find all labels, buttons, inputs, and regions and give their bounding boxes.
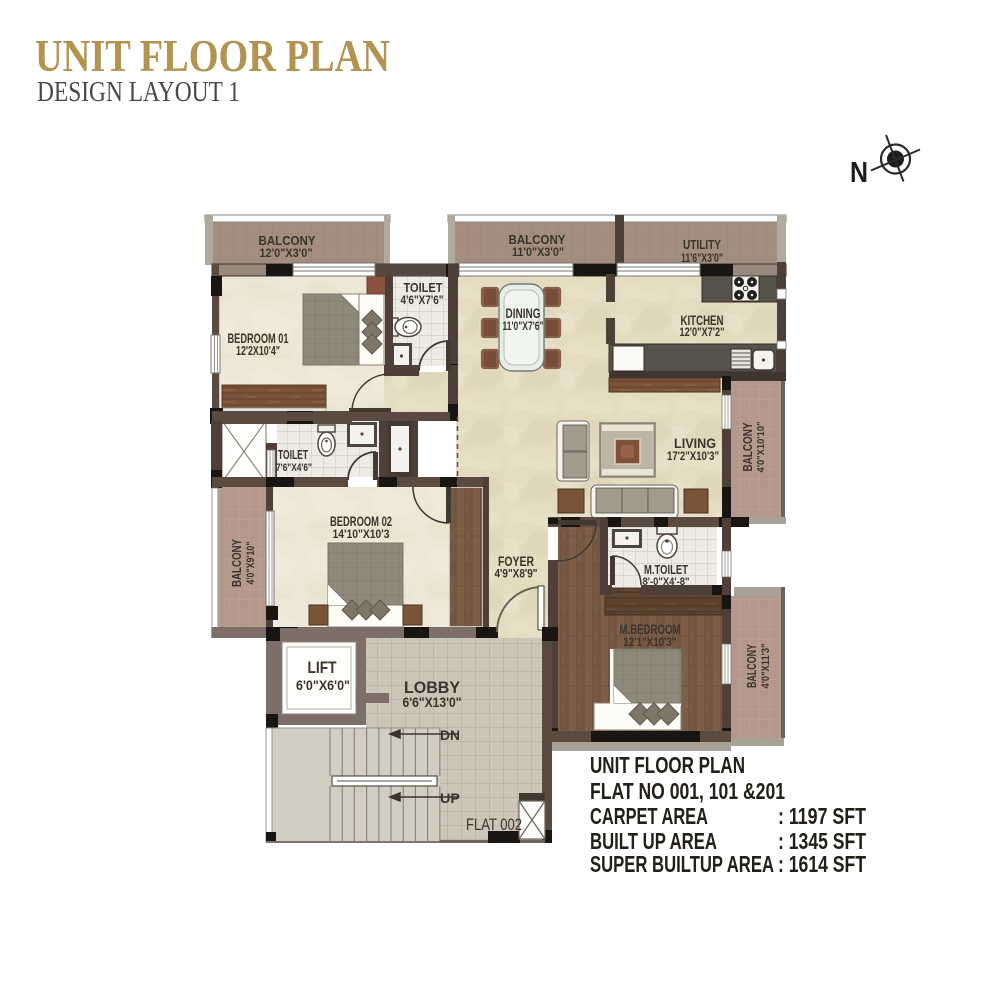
svg-text:14'10"X10'3: 14'10"X10'3 [333, 527, 390, 541]
svg-text:SUPER BUILTUP AREA: SUPER BUILTUP AREA [590, 851, 774, 877]
svg-text:11'0"X7'6": 11'0"X7'6" [503, 319, 544, 333]
svg-text:BALCONY: BALCONY [509, 232, 566, 247]
svg-text:UTILITY: UTILITY [683, 237, 721, 252]
svg-text:4'0"X11'3": 4'0"X11'3" [760, 644, 772, 689]
svg-text:4'6"X7'6": 4'6"X7'6" [401, 295, 444, 307]
svg-text:: 1614 SFT: : 1614 SFT [778, 851, 866, 877]
svg-text:6'6"X13'0": 6'6"X13'0" [403, 695, 462, 710]
svg-text:TOILET: TOILET [278, 448, 308, 462]
svg-text:FLAT 002: FLAT 002 [466, 815, 522, 834]
svg-text:6'0"X6'0": 6'0"X6'0" [296, 678, 350, 693]
svg-text:BALCONY: BALCONY [745, 644, 759, 688]
svg-text:N: N [850, 157, 868, 189]
svg-text:11'0"X3'0": 11'0"X3'0" [512, 247, 564, 259]
svg-text:CARPET AREA: CARPET AREA [590, 803, 708, 829]
svg-text:BALCONY: BALCONY [741, 422, 755, 472]
svg-text:TOILET: TOILET [404, 280, 443, 295]
svg-text:UNIT FLOOR PLAN: UNIT FLOOR PLAN [35, 30, 390, 81]
svg-text:M.TOILET: M.TOILET [644, 562, 688, 577]
svg-text:8'-0"X4'-8": 8'-0"X4'-8" [643, 576, 690, 588]
svg-text:LIFT: LIFT [308, 658, 337, 677]
svg-text:4'9"X8'9": 4'9"X8'9" [495, 569, 538, 581]
svg-text:7'6"X4'6": 7'6"X4'6" [276, 462, 312, 474]
svg-text:UNIT FLOOR PLAN: UNIT FLOOR PLAN [590, 752, 745, 778]
svg-text:12'0"X3'0": 12'0"X3'0" [260, 248, 313, 260]
svg-text:FOYER: FOYER [498, 554, 534, 569]
svg-text:12'1"X10'3": 12'1"X10'3" [624, 635, 677, 649]
svg-text:: 1197 SFT: : 1197 SFT [778, 803, 866, 829]
svg-text:BALCONY: BALCONY [259, 233, 316, 248]
svg-text:11'6"X3'0": 11'6"X3'0" [681, 253, 723, 265]
svg-text:UP: UP [440, 790, 460, 806]
svg-text:FLAT NO 001, 101 &201: FLAT NO 001, 101 &201 [590, 778, 785, 804]
svg-text:4'0"X9'10": 4'0"X9'10" [245, 542, 257, 585]
svg-text:DESIGN LAYOUT 1: DESIGN LAYOUT 1 [37, 76, 240, 108]
svg-text:12'2X10'4": 12'2X10'4" [236, 344, 280, 358]
svg-text:BALCONY: BALCONY [230, 538, 244, 587]
svg-text:4'0"X10'10": 4'0"X10'10" [755, 421, 767, 472]
svg-text:DN: DN [440, 727, 460, 743]
svg-text:17'2"X10'3": 17'2"X10'3" [667, 449, 719, 463]
svg-text:12'0"X7'2": 12'0"X7'2" [680, 325, 725, 339]
